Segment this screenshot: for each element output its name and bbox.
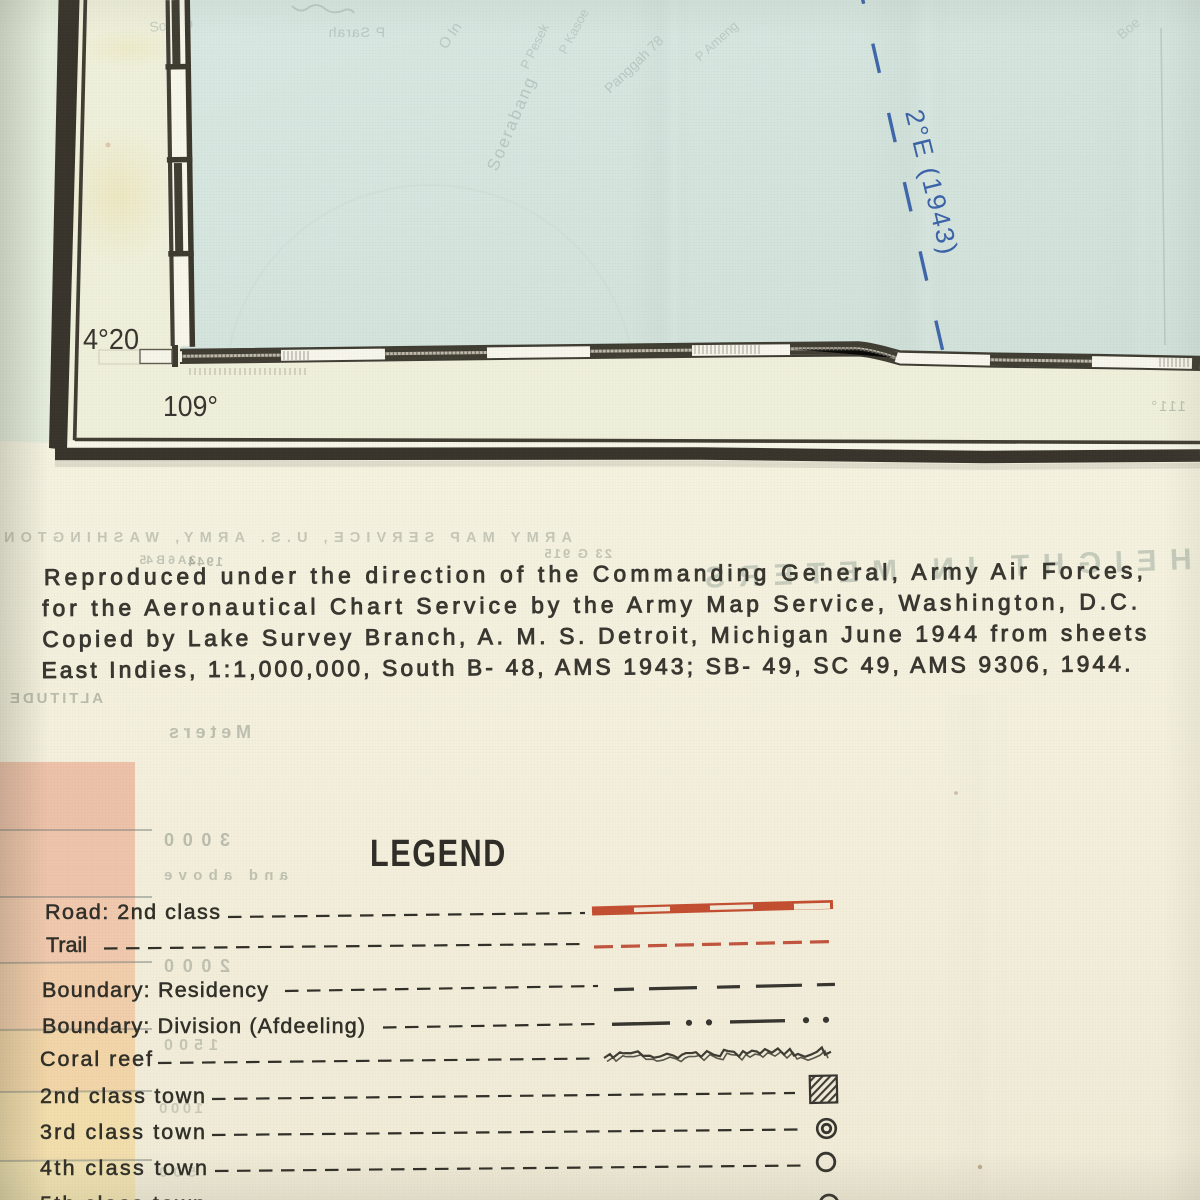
svg-text:Coral reef: Coral reef [40, 1047, 152, 1071]
svg-text:LEGEND: LEGEND [370, 833, 507, 875]
svg-text:3rd class town: 3rd class town [40, 1120, 205, 1144]
svg-text:5th class town: 5th class town [40, 1192, 205, 1200]
svg-text:109°: 109° [163, 391, 218, 423]
svg-text:4th class town: 4th class town [40, 1156, 207, 1180]
svg-text:23 G 915: 23 G 915 [543, 546, 613, 561]
svg-text:Trail: Trail [46, 933, 87, 957]
svg-text:Meters: Meters [165, 722, 251, 742]
svg-text:2nd class town: 2nd class town [40, 1084, 205, 1108]
svg-text:111°: 111° [1149, 398, 1186, 415]
svg-text:Boundary: Division (Afdeeling): Boundary: Division (Afdeeling) [42, 1014, 365, 1038]
svg-text:and above: and above [163, 867, 288, 884]
svg-text:P Sarah: P Sarah [328, 24, 385, 40]
svg-text:Boundary: Residency: Boundary: Residency [42, 978, 268, 1002]
svg-text:ALTITUDE: ALTITUDE [8, 690, 103, 707]
svg-text:Road: 2nd class: Road: 2nd class [45, 900, 220, 924]
svg-text:ARMY MAP SERVICE, U.S. ARMY, W: ARMY MAP SERVICE, U.S. ARMY, WASHINGTON [0, 530, 572, 546]
svg-text:4°20: 4°20 [83, 324, 139, 356]
